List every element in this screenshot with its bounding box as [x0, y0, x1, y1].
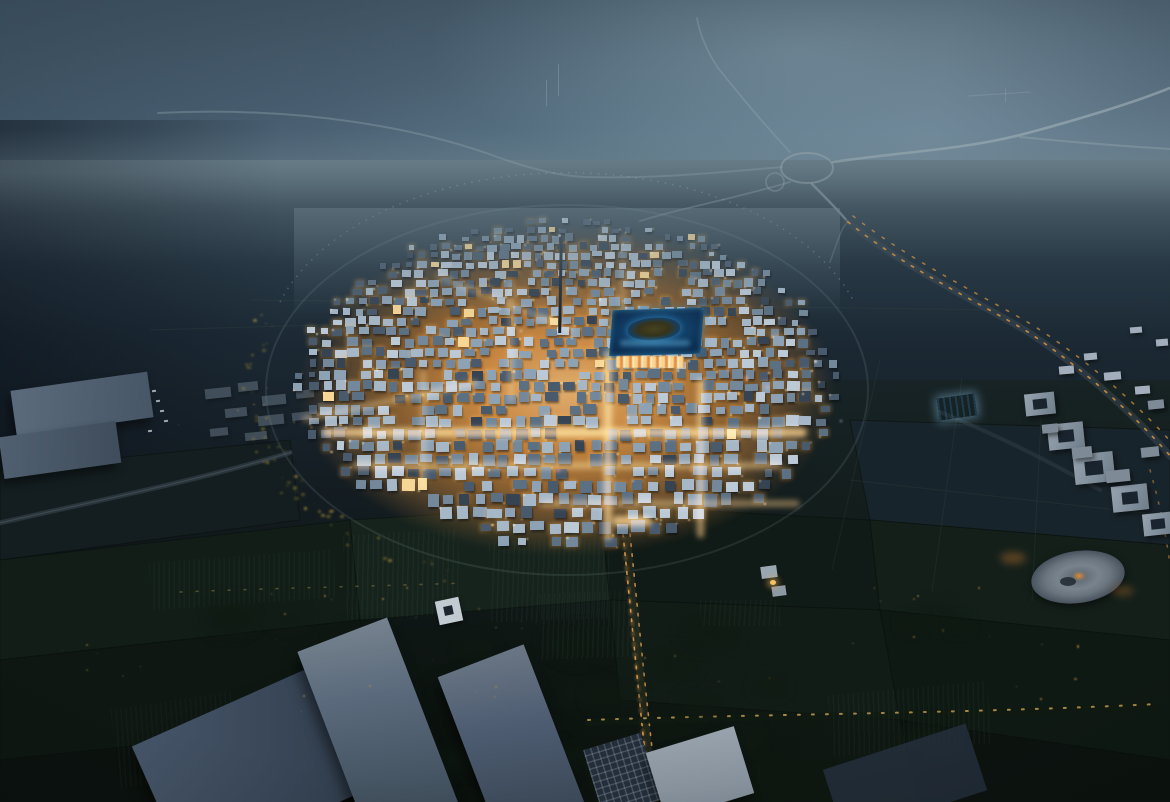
field-light-dot — [406, 587, 408, 589]
field-light-dot — [521, 628, 523, 630]
lit-tree-dot — [257, 420, 259, 422]
lit-tree-dot — [446, 570, 448, 571]
lit-tree-dot — [251, 354, 254, 356]
lit-tree-dot — [294, 497, 299, 501]
field-light-dot — [1077, 645, 1079, 647]
field-light-dot — [942, 629, 944, 631]
field-light-dot — [913, 598, 915, 600]
lit-tree-dot — [265, 417, 268, 419]
lit-tree-dot — [262, 344, 265, 346]
lit-tree-dot — [296, 491, 298, 492]
lit-tree-dot — [252, 438, 255, 441]
field-light-dot — [86, 669, 88, 671]
lit-tree-dot — [431, 563, 433, 565]
field-light-dot — [178, 424, 179, 425]
field-light-dot — [495, 627, 497, 629]
field-light-dot — [644, 657, 646, 659]
lit-tree-dot — [294, 475, 298, 478]
field-light-dot — [316, 418, 318, 420]
field-light-dot — [263, 404, 265, 406]
field-light-dot — [415, 617, 417, 619]
field-light-dot — [917, 595, 919, 597]
lit-tree-dot — [242, 387, 245, 390]
lit-tree-dot — [423, 561, 426, 564]
field-light-dot — [331, 599, 333, 601]
field-light-dot — [271, 593, 273, 595]
lit-tree-dot — [383, 557, 387, 560]
lit-tree-dot — [273, 459, 276, 462]
lit-tree-dot — [300, 479, 304, 482]
lit-tree-dot — [282, 477, 284, 478]
field-light-dot — [276, 639, 277, 640]
field-light-dot — [369, 685, 371, 687]
lit-tree-dot — [346, 532, 349, 535]
lit-tree-dot — [286, 484, 290, 487]
lit-tree-dot — [330, 524, 332, 526]
field-light-dot — [495, 686, 497, 688]
field-light-dot — [494, 696, 496, 698]
lit-tree-dot — [318, 510, 321, 513]
lit-tree-dot — [260, 314, 263, 317]
lit-tree-dot — [262, 349, 266, 353]
field-light-dot — [852, 643, 854, 645]
lit-tree-dot — [284, 450, 287, 452]
field-light-dot — [478, 608, 480, 610]
field-light-dot — [270, 436, 272, 438]
lit-tree-dot — [301, 493, 305, 496]
field-light-dot — [718, 681, 720, 683]
field-light-dot — [267, 387, 268, 388]
field-light-dot — [507, 656, 508, 657]
lit-tree-dot — [271, 325, 273, 327]
lit-tree-dot — [255, 451, 258, 454]
field-light-dot — [874, 587, 876, 589]
field-lights — [0, 0, 1170, 802]
lit-tree-dot — [250, 363, 252, 365]
aerial-dusk-city-photo — [0, 0, 1170, 802]
lit-tree-dot — [430, 560, 433, 562]
field-light-dot — [382, 598, 384, 600]
field-light-dot — [432, 659, 433, 660]
lit-tree-dot — [293, 486, 297, 490]
field-light-dot — [293, 421, 295, 423]
field-light-dot — [1040, 698, 1042, 700]
lit-tree-dot — [251, 391, 253, 393]
field-light-dot — [140, 666, 142, 668]
lit-tree-dot — [377, 537, 380, 540]
lit-tree-dot — [346, 544, 349, 547]
lit-tree-dot — [263, 461, 265, 463]
field-light-dot — [303, 695, 305, 697]
lit-tree-dot — [265, 323, 267, 325]
field-light-dot — [521, 621, 522, 622]
field-light-dot — [989, 636, 990, 637]
field-light-dot — [62, 650, 64, 652]
lit-tree-dot — [261, 427, 265, 431]
field-light-dot — [122, 675, 124, 677]
lit-tree-dot — [255, 415, 258, 417]
field-light-dot — [301, 711, 302, 712]
lit-tree-dot — [253, 319, 257, 322]
lit-tree-dot — [246, 366, 250, 370]
lit-tree-dot — [314, 503, 316, 504]
lit-tree-dot — [388, 559, 392, 562]
lit-tree-dot — [304, 507, 307, 510]
field-light-dot — [880, 600, 882, 602]
lit-tree-dot — [266, 343, 268, 344]
field-light-dot — [86, 644, 88, 646]
lit-tree-dot — [445, 575, 447, 577]
field-light-dot — [324, 595, 326, 597]
field-light-dot — [456, 616, 457, 617]
field-light-dot — [253, 404, 254, 405]
field-light-dot — [978, 587, 980, 589]
lit-tree-dot — [266, 461, 270, 464]
lit-tree-dot — [326, 515, 330, 519]
field-light-dot — [674, 655, 676, 657]
lit-tree-dot — [329, 510, 333, 513]
field-light-dot — [310, 426, 312, 428]
lit-tree-dot — [280, 492, 283, 494]
lit-tree-dot — [443, 580, 446, 583]
lit-tree-dot — [270, 452, 272, 453]
lit-tree-dot — [265, 370, 267, 371]
field-light-dot — [284, 613, 286, 615]
field-light-dot — [536, 621, 537, 622]
lit-tree-dot — [321, 514, 324, 517]
lit-tree-dot — [263, 436, 267, 439]
field-light-dot — [475, 691, 476, 692]
lit-tree-dot — [268, 446, 271, 448]
field-light-dot — [97, 653, 98, 654]
lit-tree-dot — [340, 515, 344, 518]
field-light-dot — [237, 410, 239, 412]
field-light-dot — [769, 677, 771, 679]
lit-tree-dot — [277, 446, 280, 449]
field-light-dot — [1041, 644, 1042, 645]
field-light-dot — [1074, 678, 1076, 680]
field-light-dot — [1016, 686, 1017, 687]
field-light-dot — [913, 636, 915, 638]
